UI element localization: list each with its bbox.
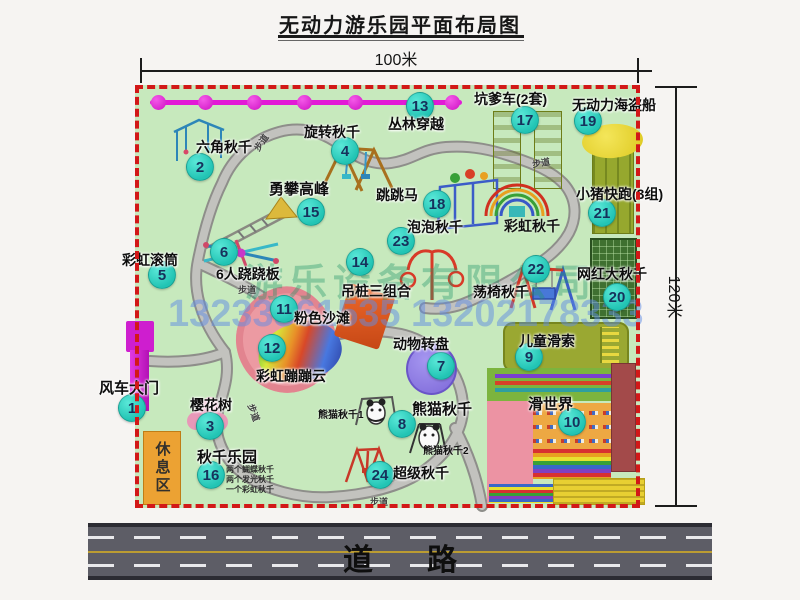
pit-car-track-1 <box>493 111 521 189</box>
watermark-phone: 13233861535 13202178333 <box>168 293 644 336</box>
zipline-pole <box>247 95 262 110</box>
title-underline <box>278 35 524 38</box>
pit-car-track-2 <box>534 111 562 189</box>
rest-area: 休息区 <box>143 431 181 505</box>
zipline-pole <box>348 95 363 110</box>
animal-turntable-disc <box>406 343 457 395</box>
height-dimension-label: 120米 <box>664 273 688 321</box>
swing-note-line: 两个发光秋千 <box>226 475 274 485</box>
slide-world-rainbow <box>533 449 611 479</box>
road-label: 道路 <box>115 535 739 579</box>
title-underline-2 <box>278 40 524 41</box>
width-dimension-label: 100米 <box>140 46 652 70</box>
zipline-pole <box>151 95 166 110</box>
slide-world-yellow <box>553 478 645 505</box>
pig-run-track <box>592 152 634 234</box>
zipline-pole <box>198 95 213 110</box>
swing-park-notes: 两个蝴蝶秋千两个发光秋千一个彩虹秋千 <box>226 465 274 495</box>
windmill-gate-top <box>126 321 154 352</box>
page-title: 无动力游乐园平面布局图 <box>0 9 800 38</box>
swing-note-line: 两个蝴蝶秋千 <box>226 465 274 475</box>
height-dimension-tick-top <box>655 86 697 88</box>
playground-plan-image: 无动力游乐园平面布局图 100米 120米 <box>0 0 800 600</box>
width-dimension-line <box>140 70 652 72</box>
zipline-pole <box>297 95 312 110</box>
height-dimension-tick-bottom <box>655 505 697 507</box>
zipline-pole <box>445 95 460 110</box>
road: 道路 <box>88 523 712 580</box>
slide-world-platform <box>611 363 636 472</box>
slide-world-orange <box>533 403 611 449</box>
windmill-gate-bar <box>130 350 149 411</box>
swing-note-line: 一个彩虹秋千 <box>226 485 274 495</box>
